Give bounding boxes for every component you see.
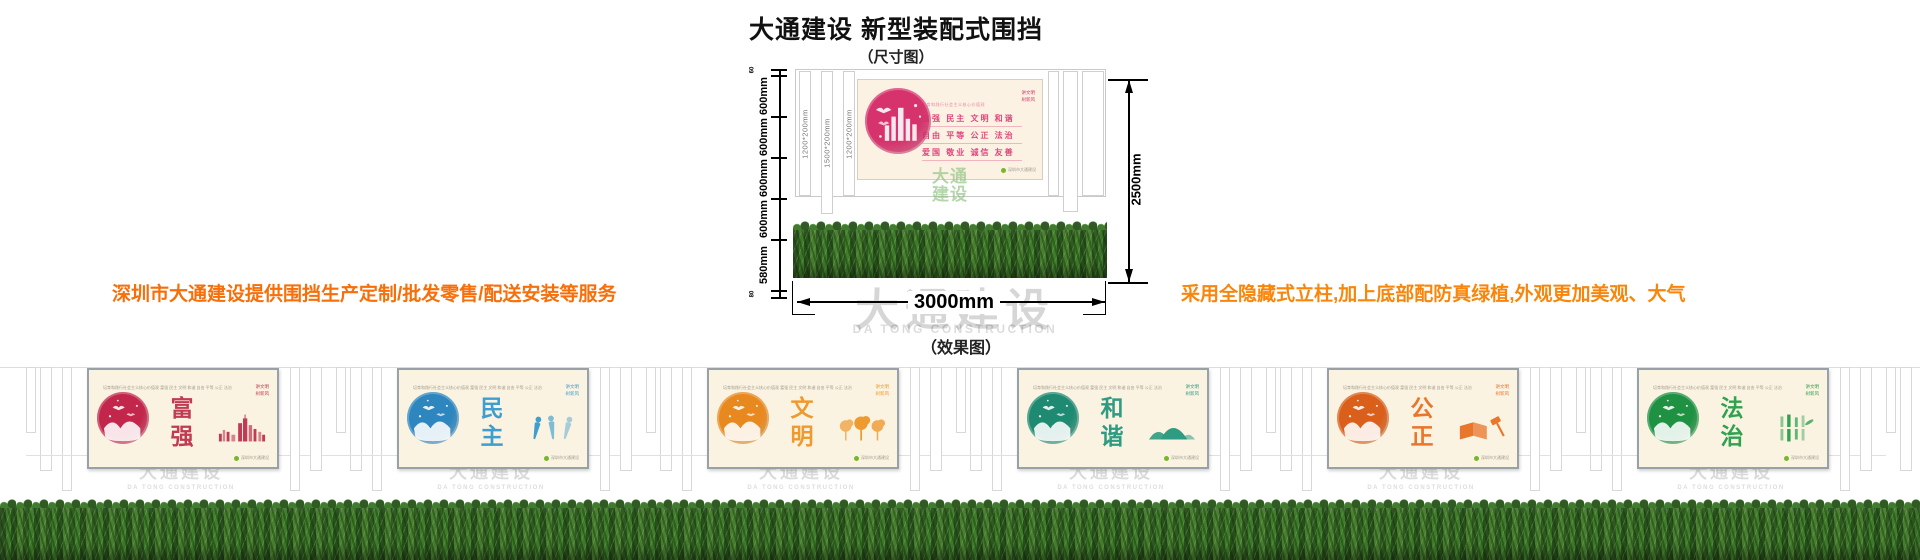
papercut-art (717, 392, 769, 444)
arrow-right-icon (1092, 298, 1105, 306)
dim-seg-label: 600mm (758, 77, 770, 115)
board-corner-note: 讲文明 树新风 (256, 384, 270, 398)
papercut-art (1647, 392, 1699, 444)
brand-watermark-en: DA TONG CONSTRUCTION (646, 485, 956, 491)
papercut-art (865, 88, 931, 154)
bamboo-motif-icon (1767, 414, 1817, 442)
brand-watermark-en: DA TONG CONSTRUCTION (956, 485, 1266, 491)
green-dot-icon (544, 456, 549, 461)
board-footer: 深圳市大通建设 (1164, 455, 1199, 461)
board-corner-note: 讲文明 树新风 (876, 384, 890, 398)
value-billboard: 培育和践行社会主义核心价值观 富强 民主 文明 和谐 自由 平等 公正 法治 爱… (1637, 368, 1829, 469)
fence-post (1576, 367, 1586, 433)
book-gavel-motif-icon (1457, 414, 1507, 442)
papercut-theme-circle-graphic (1337, 392, 1389, 444)
board-footer-text: 深圳市大通建设 (1171, 455, 1199, 461)
dim-tick (771, 69, 787, 71)
theme-word: 公正 (1403, 396, 1437, 452)
fence-post (1550, 367, 1562, 471)
values-row: 自由 平等 公正 法治 (922, 127, 1022, 144)
fence-module: 培育和践行社会主义核心价值观 富强 民主 文明 和谐 自由 平等 公正 法治 爱… (956, 362, 1266, 512)
board-footer-text: 深圳市大通建设 (551, 455, 579, 461)
board-footer-text: 深圳市大通建设 (1008, 167, 1036, 173)
dim-tick (771, 290, 787, 292)
core-values-rows: 富强 民主 文明 和谐 自由 平等 公正 法治 爱国 敬业 诚信 友善 (922, 110, 1022, 161)
green-logo-watermark: 大通建设 (930, 168, 970, 204)
board-footer-text: 深圳市大通建设 (861, 455, 889, 461)
board-corner-note: 讲文明 树新风 (1186, 384, 1200, 398)
poster-canvas: 大通建设 新型装配式围挡 （尺寸图） 深圳市大通建设提供围挡生产定制/批发零售/… (0, 0, 1920, 560)
post-size-label: 1200*200mm (801, 109, 810, 159)
dim-ext-line (1108, 282, 1148, 284)
board-header-line: 培育和践行社会主义核心价值观 富强 民主 文明 和谐 自由 平等 公正 法治 爱… (1343, 385, 1473, 391)
green-dot-icon (1164, 456, 1169, 461)
dim-seg-label: 600mm (758, 118, 770, 156)
green-dot-icon (1784, 456, 1789, 461)
theme-word: 和谐 (1093, 396, 1127, 452)
board-header-line: 培育和践行社会主义核心价值观 富强 民主 文明 和谐 自由 平等 公正 法治 爱… (103, 385, 233, 391)
papercut-art (97, 392, 149, 444)
fence-post (956, 367, 966, 433)
width-dim-label: 3000mm (908, 291, 1000, 314)
height-dim-label: 2500mm (1129, 153, 1144, 205)
board-corner-note: 讲文明 树新风 (1496, 384, 1510, 398)
green-dot-icon (1001, 168, 1006, 173)
papercut-art (407, 392, 459, 444)
arrow-up-icon (1125, 80, 1133, 93)
board-corner-note: 讲文明 树新风 (1806, 384, 1820, 398)
board-footer: 深圳市大通建设 (234, 455, 269, 461)
fence-module: 培育和践行社会主义核心价值观 富强 民主 文明 和谐 自由 平等 公正 法治 爱… (1576, 362, 1886, 512)
green-dot-icon (854, 456, 859, 461)
values-row: 爱国 敬业 诚信 友善 (922, 144, 1022, 161)
board-header-line: 培育和践行社会主义核心价值观 富强 民主 文明 和谐 自由 平等 公正 法治 爱… (723, 385, 853, 391)
fence-module: 培育和践行社会主义核心价值观 富强 民主 文明 和谐 自由 平等 公正 法治 爱… (26, 362, 336, 512)
post-size-label: 1500*200mm (823, 118, 832, 168)
arrow-left-icon (797, 298, 810, 306)
trees-motif-icon (837, 414, 887, 442)
dim-seg-label: 580mm (758, 246, 770, 284)
board-footer: 深圳市大通建设 (854, 455, 889, 461)
board-footer: 深圳市大通建设 (1784, 455, 1819, 461)
artificial-hedge (793, 228, 1107, 278)
left-dim-line (779, 69, 781, 297)
papercut-art (1027, 392, 1079, 444)
board-footer: 深圳市大通建设 (544, 455, 579, 461)
fence-post (646, 367, 656, 433)
fence-post (1266, 367, 1276, 433)
values-row: 富强 民主 文明 和谐 (922, 110, 1022, 127)
fence-post-labelled: 1500*200mm (821, 71, 833, 214)
dim-tick (771, 198, 787, 200)
fence-post-labelled: 1200*200mm (799, 71, 811, 196)
value-billboard: 培育和践行社会主义核心价值观 富强 民主 文明 和谐 自由 平等 公正 法治 爱… (707, 368, 899, 469)
fence-post (930, 367, 942, 471)
board-corner-note: 讲文明 树新风 (566, 384, 580, 398)
people-motif-icon (527, 414, 577, 442)
board-header-line: 培育和践行社会主义核心价值观 (922, 102, 1030, 108)
dim-seg-label: 80 (749, 291, 755, 298)
fence-post (26, 367, 36, 433)
fence-post (336, 367, 346, 433)
papercut-theme-circle-graphic (717, 392, 769, 444)
dim-tick (771, 75, 787, 77)
papercut-theme-circle-graphic (1027, 392, 1079, 444)
fence-post (1240, 367, 1252, 471)
fence-post (1082, 71, 1104, 196)
dim-tick (771, 297, 787, 299)
artificial-hedge-bottom (0, 506, 1920, 560)
board-footer-text: 深圳市大通建设 (1791, 455, 1819, 461)
fence-module: 培育和践行社会主义核心价值观 富强 民主 文明 和谐 自由 平等 公正 法治 爱… (336, 362, 646, 512)
board-header-line: 培育和践行社会主义核心价值观 富强 民主 文明 和谐 自由 平等 公正 法治 爱… (1653, 385, 1783, 391)
value-billboard: 培育和践行社会主义核心价值观 富强 民主 文明 和谐 自由 平等 公正 法治 爱… (87, 368, 279, 469)
brand-watermark-en: DA TONG CONSTRUCTION (26, 485, 336, 491)
page-title: 大通建设 新型装配式围挡 (596, 10, 1196, 46)
value-billboard: 培育和践行社会主义核心价值观 富强 民主 文明 和谐 自由 平等 公正 法治 爱… (1017, 368, 1209, 469)
board-footer: 深圳市大通建设 (1001, 167, 1036, 173)
dim-tick (771, 116, 787, 118)
board-footer: 深圳市大通建设 (1474, 455, 1509, 461)
board-corner-note: 讲文明 树新风 (1022, 90, 1036, 104)
fence-module: 培育和践行社会主义核心价值观 富强 民主 文明 和谐 自由 平等 公正 法治 爱… (646, 362, 956, 512)
value-billboard: 培育和践行社会主义核心价值观 富强 民主 文明 和谐 自由 平等 公正 法治 爱… (1327, 368, 1519, 469)
theme-word: 文明 (783, 396, 817, 452)
board-header-line: 培育和践行社会主义核心价值观 富强 民主 文明 和谐 自由 平等 公正 法治 爱… (413, 385, 543, 391)
board-header-line: 培育和践行社会主义核心价值观 富强 民主 文明 和谐 自由 平等 公正 法治 爱… (1033, 385, 1163, 391)
dim-tick (771, 157, 787, 159)
mountains-motif-icon (1147, 414, 1197, 442)
effect-fence-row: 培育和践行社会主义核心价值观 富强 民主 文明 和谐 自由 平等 公正 法治 爱… (26, 362, 1886, 512)
brand-watermark-en: DA TONG CONSTRUCTION (840, 322, 1070, 336)
brand-watermark-en: DA TONG CONSTRUCTION (1576, 485, 1886, 491)
promo-text-left: 深圳市大通建设提供围挡生产定制/批发零售/配送安装等服务 (112, 279, 617, 306)
value-billboard: 培育和践行社会主义核心价值观 富强 民主 文明 和谐 自由 平等 公正 法治 爱… (397, 368, 589, 469)
papercut-city-circle-graphic (865, 88, 931, 154)
fence-post (1860, 367, 1872, 471)
dimension-caption: （尺寸图） (746, 46, 1046, 67)
skyline-motif-icon (217, 414, 267, 442)
papercut-art (1337, 392, 1389, 444)
post-size-label: 1200*200mm (845, 109, 854, 159)
fence-post-labelled: 1200*200mm (843, 71, 855, 196)
papercut-theme-circle-graphic (1647, 392, 1699, 444)
fence-post (1886, 367, 1896, 433)
fence-post (1048, 71, 1059, 196)
promo-text-right: 采用全隐藏式立柱,加上底部配防真绿植,外观更加美观、大气 (1181, 279, 1686, 306)
fence-post (1900, 367, 1912, 471)
dim-seg-label: 60 (749, 67, 755, 74)
theme-word: 民主 (473, 396, 507, 452)
fence-post (620, 367, 632, 471)
arrow-down-icon (1125, 269, 1133, 282)
board-footer-text: 深圳市大通建设 (1481, 455, 1509, 461)
brand-watermark-en: DA TONG CONSTRUCTION (1266, 485, 1576, 491)
green-dot-icon (1474, 456, 1479, 461)
green-dot-icon (234, 456, 239, 461)
theme-word: 富强 (163, 396, 197, 452)
board-footer-text: 深圳市大通建设 (241, 455, 269, 461)
papercut-theme-circle-graphic (407, 392, 459, 444)
fence-post (1063, 71, 1078, 212)
brand-watermark-en: DA TONG CONSTRUCTION (336, 485, 646, 491)
papercut-theme-circle-graphic (97, 392, 149, 444)
fence-post (310, 367, 322, 471)
theme-word: 法治 (1713, 396, 1747, 452)
fence-module: 培育和践行社会主义核心价值观 富强 民主 文明 和谐 自由 平等 公正 法治 爱… (1266, 362, 1576, 512)
dim-seg-label: 600mm (758, 200, 770, 238)
dim-seg-label: 600mm (758, 159, 770, 197)
dim-tick (771, 239, 787, 241)
